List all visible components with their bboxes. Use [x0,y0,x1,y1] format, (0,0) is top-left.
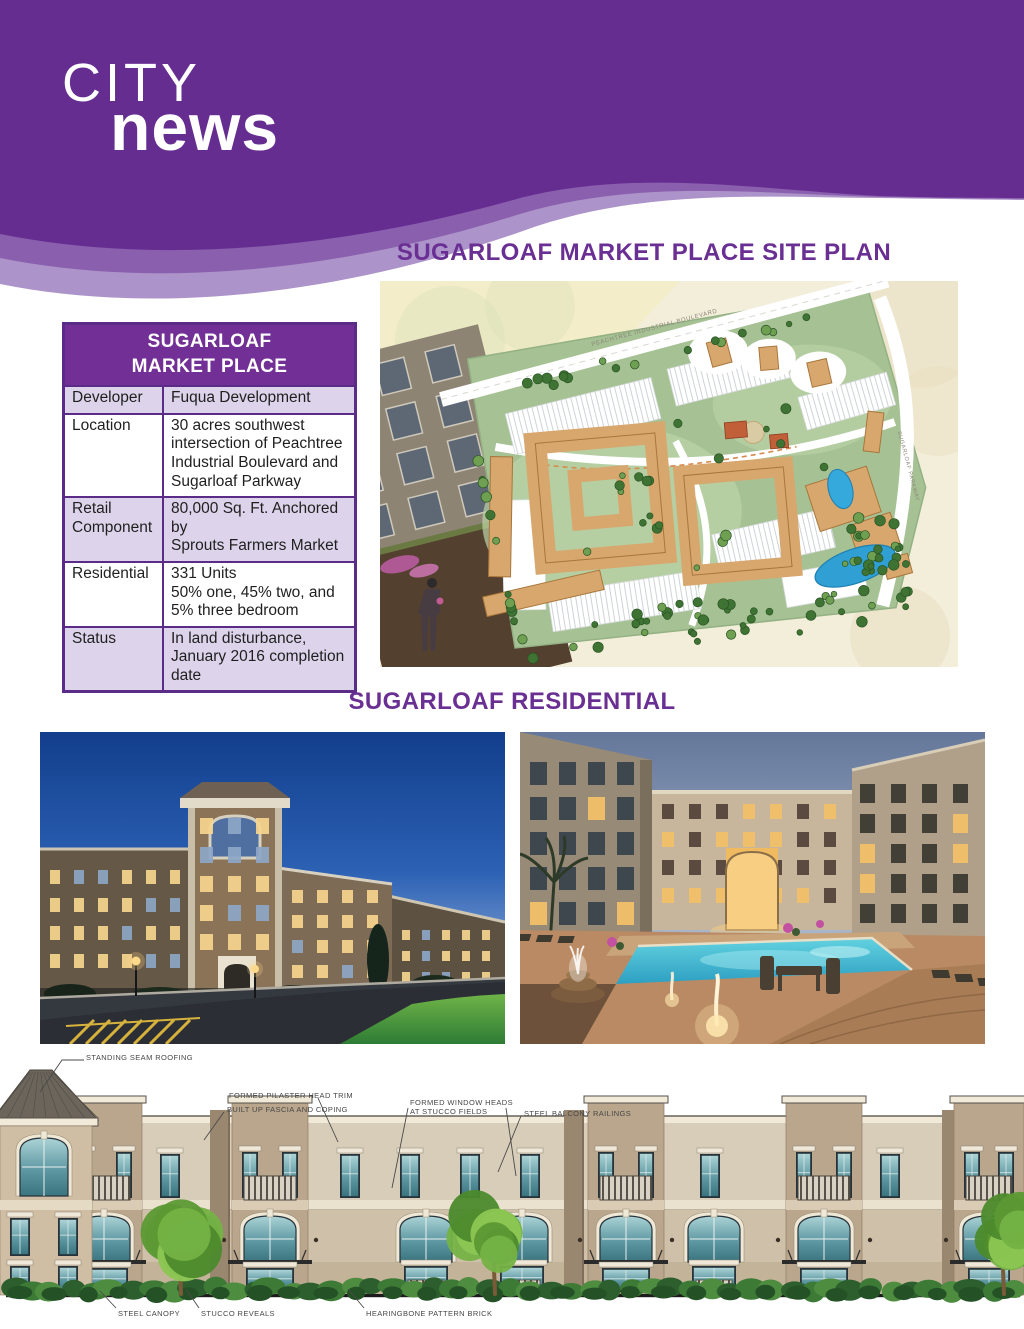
table-row-location: Location 30 acres southwest intersection… [65,413,354,496]
info-table-title-line2: MARKET PLACE [65,354,354,379]
photo-pool-courtyard [520,732,985,1044]
table-row-status: Status In land disturbance, January 2016… [65,626,354,691]
row-value: Fuqua Development [162,387,354,413]
label-steel-balcony-railings: STEEL BALCONY RAILINGS [524,1109,631,1118]
row-label: Residential [65,563,162,626]
label-steel-canopy: STEEL CANOPY [118,1309,180,1318]
label-fascia-coping: BUILT UP FASCIA AND COPING [227,1105,348,1114]
label-standing-seam-roofing: STANDING SEAM ROOFING [86,1053,193,1062]
row-label: Location [65,415,162,496]
label-pilaster-head-trim: FORMED PILASTER HEAD TRIM [229,1091,353,1100]
residential-title: SUGARLOAF RESIDENTIAL [0,688,1024,716]
table-row-retail: Retail Component 80,000 Sq. Ft. Anchored… [65,496,354,561]
newsletter-page: CITY news SUGARLOAF MARKET PLACE SITE PL… [0,0,1024,1329]
photo-dusk-exterior [40,732,505,1044]
row-value: 30 acres southwest intersection of Peach… [162,415,354,496]
row-value: In land disturbance, January 2016 comple… [162,628,354,691]
table-row-residential: Residential 331 Units 50% one, 45% two, … [65,561,354,626]
info-table: SUGARLOAF MARKET PLACE Developer Fuqua D… [62,322,357,693]
row-label: Status [65,628,162,691]
row-label: Developer [65,387,162,413]
site-plan-title: SUGARLOAF MARKET PLACE SITE PLAN [370,239,918,267]
site-plan-figure: PEACHTREE INDUSTRIAL BOULEVARD SUGARLOAF… [380,281,958,667]
info-table-title-line1: SUGARLOAF [65,329,354,354]
elevation-drawing: STANDING SEAM ROOFING FORMED PILASTER HE… [0,1048,1024,1329]
label-stucco-reveals: STUCCO REVEALS [201,1309,275,1318]
label-herringbone-brick: HEARINGBONE PATTERN BRICK [366,1309,492,1318]
label-formed-window-heads: FORMED WINDOW HEADS AT STUCCO FIELDS [410,1098,513,1117]
row-value: 80,000 Sq. Ft. Anchored by Sprouts Farme… [162,498,354,561]
brand-news-text: news [110,94,279,160]
info-table-title: SUGARLOAF MARKET PLACE [65,325,354,385]
row-label: Retail Component [65,498,162,561]
row-value: 331 Units 50% one, 45% two, and 5% three… [162,563,354,626]
site-plan-illustration: PEACHTREE INDUSTRIAL BOULEVARD SUGARLOAF… [380,281,958,667]
table-row-developer: Developer Fuqua Development [65,385,354,413]
